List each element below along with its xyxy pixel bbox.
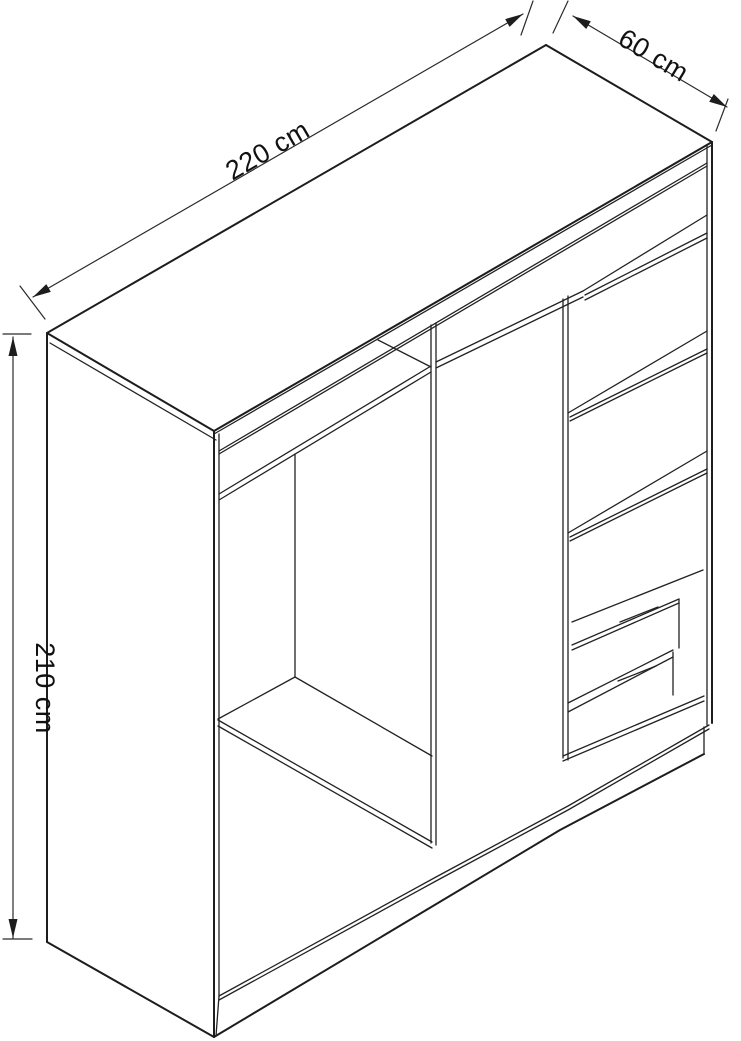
dimension-width: 220 cm <box>20 1 533 319</box>
top-front-edge-inner <box>214 145 712 434</box>
wardrobe-dimension-diagram: 220 cm 60 cm 210 cm <box>0 0 741 1041</box>
interior-dividers <box>431 296 568 845</box>
wardrobe-outline <box>47 45 712 1037</box>
right-shelf3-back-edge <box>568 451 707 533</box>
right-shelf3-front-edge <box>570 469 707 537</box>
drawer2-top-edge <box>568 650 673 703</box>
right-shelf1-front-edge-inner <box>585 238 707 300</box>
bottom-panel-front-edge <box>219 725 709 996</box>
drawers <box>568 599 679 712</box>
left-bottom-edge <box>47 942 214 1037</box>
drawer2-top-edge-inner <box>568 657 673 712</box>
height-arrowhead-bottom <box>9 919 18 938</box>
right-shelf1-front-edge <box>585 233 707 295</box>
width-dimension-label: 220 cm <box>220 114 314 186</box>
width-arrowhead-right <box>505 14 523 27</box>
depth-arrowhead-left <box>573 16 591 29</box>
top-left-edge <box>47 333 214 431</box>
low-shelf-front-edge-inner <box>218 726 432 848</box>
top-shelf-left-front-edge <box>219 366 431 494</box>
top-panel-thickness-left <box>50 343 216 440</box>
width-extension-tick-right <box>521 1 533 35</box>
drawer1-top-edge <box>572 599 679 645</box>
diagram-canvas: 220 cm 60 cm 210 cm <box>0 0 741 1041</box>
height-dimension-label: 210 cm <box>30 642 60 734</box>
right-shelf1-back-edge <box>583 215 707 291</box>
width-arrowhead-left <box>33 284 51 297</box>
right-shelf2-front-edge <box>570 349 707 417</box>
depth-extension-tick-left <box>553 1 568 33</box>
right-shelf3-front-edge-inner <box>570 473 707 541</box>
right-shelf4-back-edge <box>572 570 703 622</box>
low-shelf-depth-edge <box>218 677 295 719</box>
bottom-panel-front-edge-inner <box>219 729 709 1000</box>
depth-arrowhead-right <box>709 94 727 107</box>
top-shelf-mid-front-edge <box>436 291 583 362</box>
right-floor-edge-inner <box>563 701 704 761</box>
dimension-depth: 60 cm <box>553 1 728 131</box>
plinth-bottom-edge <box>214 754 704 1037</box>
plinth-left-end <box>216 996 219 1036</box>
top-shelf-mid-front-edge-inner <box>436 297 583 368</box>
right-shelf2-front-edge-inner <box>570 353 707 421</box>
top-panel-underside <box>219 163 707 451</box>
right-floor-edge <box>563 696 704 756</box>
top-back-edge <box>47 45 546 333</box>
drawer1-top-edge-inner <box>572 603 679 650</box>
low-shelf-front-edge <box>218 720 432 842</box>
height-arrowhead-top <box>9 337 18 356</box>
right-shelf2-back-edge <box>568 331 707 413</box>
low-shelf-back-edge <box>295 677 432 756</box>
dimension-height: 210 cm <box>3 334 60 939</box>
top-panel-underside-inner <box>219 166 707 454</box>
depth-dimension-label: 60 cm <box>613 23 694 88</box>
